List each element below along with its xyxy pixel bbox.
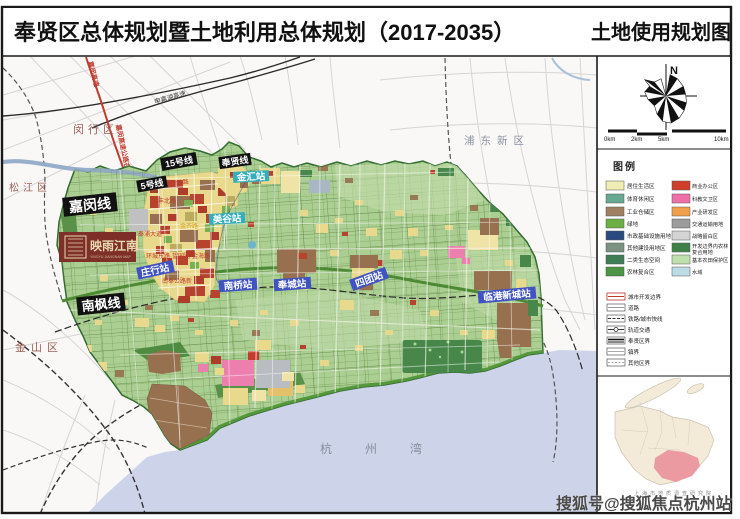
svg-text:金山区: 金山区 bbox=[15, 340, 63, 354]
svg-text:体育休闲区: 体育休闲区 bbox=[627, 195, 655, 203]
svg-text:闵行区: 闵行区 bbox=[73, 122, 118, 136]
svg-text:杭州湾: 杭州湾 bbox=[320, 441, 455, 456]
svg-text:南桥站: 南桥站 bbox=[223, 278, 253, 292]
svg-text:水域: 水域 bbox=[692, 268, 702, 276]
svg-text:工业仓储区: 工业仓储区 bbox=[627, 208, 655, 216]
svg-text:松江区: 松江区 bbox=[9, 181, 51, 194]
svg-text:开发边界内农林: 开发边界内农林 bbox=[692, 242, 729, 250]
svg-text:汇丰北路: 汇丰北路 bbox=[152, 197, 176, 205]
svg-text:浦东新区: 浦东新区 bbox=[464, 134, 530, 147]
svg-text:居住生活区: 居住生活区 bbox=[627, 182, 655, 190]
svg-text:图例: 图例 bbox=[613, 160, 637, 173]
svg-text:南奉公路新: 南奉公路新 bbox=[162, 277, 192, 285]
svg-text:金汇站: 金汇站 bbox=[236, 170, 267, 184]
svg-text:农林复合区: 农林复合区 bbox=[627, 268, 655, 276]
svg-text:产业研发区: 产业研发区 bbox=[692, 208, 718, 216]
svg-text:金齐路: 金齐路 bbox=[180, 222, 198, 230]
svg-text:基本农田保护区: 基本农田保护区 bbox=[692, 256, 728, 264]
svg-text:搜狐号@搜狐焦点杭州站: 搜狐号@搜狐焦点杭州站 bbox=[556, 494, 732, 513]
svg-text:交通运输用地: 交通运输用地 bbox=[692, 220, 723, 228]
svg-text:商业办公区: 商业办公区 bbox=[692, 182, 718, 190]
svg-text:土地使用规划图: 土地使用规划图 bbox=[591, 20, 731, 44]
svg-text:YINGYU JIANGNAN·MAP: YINGYU JIANGNAN·MAP bbox=[90, 255, 132, 259]
svg-text:城市开发边界: 城市开发边界 bbox=[628, 293, 662, 301]
svg-text:2km: 2km bbox=[631, 137, 642, 143]
svg-text:战略留白区: 战略留白区 bbox=[692, 232, 718, 240]
svg-text:绿地: 绿地 bbox=[627, 220, 639, 228]
svg-text:轨道交通: 轨道交通 bbox=[628, 326, 651, 334]
svg-text:美谷站: 美谷站 bbox=[212, 212, 243, 226]
svg-text:市政基础设施用地: 市政基础设施用地 bbox=[627, 232, 672, 240]
svg-text:奉浦大道: 奉浦大道 bbox=[138, 230, 162, 238]
svg-text:N: N bbox=[670, 65, 678, 77]
svg-text:映雨江南: 映雨江南 bbox=[90, 238, 138, 253]
svg-text:10km: 10km bbox=[714, 137, 729, 143]
svg-text:环城东路·望园路·金海路: 环城东路·望园路·金海路 bbox=[146, 252, 210, 260]
svg-text:其他区界: 其他区界 bbox=[628, 359, 651, 367]
svg-text:奉贤区界: 奉贤区界 bbox=[628, 337, 651, 345]
svg-text:其他建设用地区: 其他建设用地区 bbox=[627, 244, 666, 252]
svg-text:奉贤区总体规划暨土地利用总体规划（2017-2035）: 奉贤区总体规划暨土地利用总体规划（2017-2035） bbox=[13, 20, 515, 45]
svg-text:0km: 0km bbox=[604, 137, 615, 143]
svg-text:二类生态空间: 二类生态空间 bbox=[627, 256, 660, 264]
svg-text:道路: 道路 bbox=[628, 304, 640, 312]
svg-text:奉城站: 奉城站 bbox=[276, 277, 307, 291]
svg-text:复合用地: 复合用地 bbox=[692, 248, 713, 256]
svg-text:镇界: 镇界 bbox=[628, 348, 640, 356]
svg-text:5km: 5km bbox=[658, 137, 669, 143]
svg-text:科教文卫区: 科教文卫区 bbox=[692, 195, 718, 203]
svg-text:铁路/城市快线: 铁路/城市快线 bbox=[628, 315, 663, 323]
